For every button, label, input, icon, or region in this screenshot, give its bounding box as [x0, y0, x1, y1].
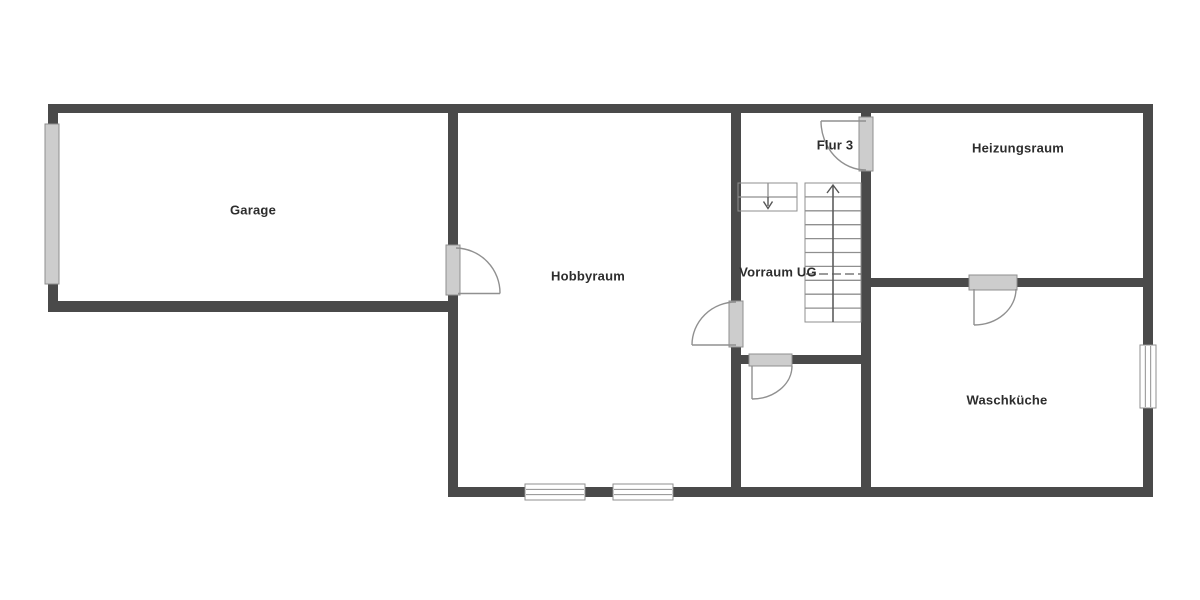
room-label-hobbyraum: Hobbyraum: [551, 269, 625, 284]
room-label-garage: Garage: [230, 203, 276, 218]
hobbyraum-left-wall: [448, 104, 458, 497]
floorplan-canvas: Garage Hobbyraum Flur 3 Vorraum UG Heizu…: [0, 0, 1200, 600]
garage-bottom-wall: [48, 301, 458, 312]
garage-door-panel: [45, 124, 59, 284]
room-label-waschkueche: Waschküche: [967, 393, 1048, 408]
hobbyraum-vorraum-door-panel: [729, 301, 743, 347]
bottom-window-1: [525, 484, 585, 500]
room-label-flur-3: Flur 3: [817, 138, 854, 153]
top-exterior-wall: [48, 104, 1153, 113]
vorraum-room-door-arc: [752, 366, 792, 399]
floorplan-drawing: [0, 0, 1200, 600]
heizung-wasch-door-arc: [974, 289, 1016, 325]
vorraum-room-door-panel: [749, 354, 792, 366]
room-label-vorraum-ug: Vorraum UG: [739, 265, 817, 280]
flur3-door-panel: [859, 117, 873, 171]
bottom-window-2: [613, 484, 673, 500]
garage-hobbyraum-door-panel: [446, 245, 460, 295]
garage-hobbyraum-door-arc: [456, 248, 500, 294]
right-exterior-wall: [1143, 104, 1153, 497]
heizung-wasch-door-panel: [969, 275, 1017, 290]
right-window: [1140, 345, 1156, 408]
vorraum-left-wall: [731, 113, 741, 487]
room-label-heizungsraum: Heizungsraum: [972, 141, 1064, 156]
